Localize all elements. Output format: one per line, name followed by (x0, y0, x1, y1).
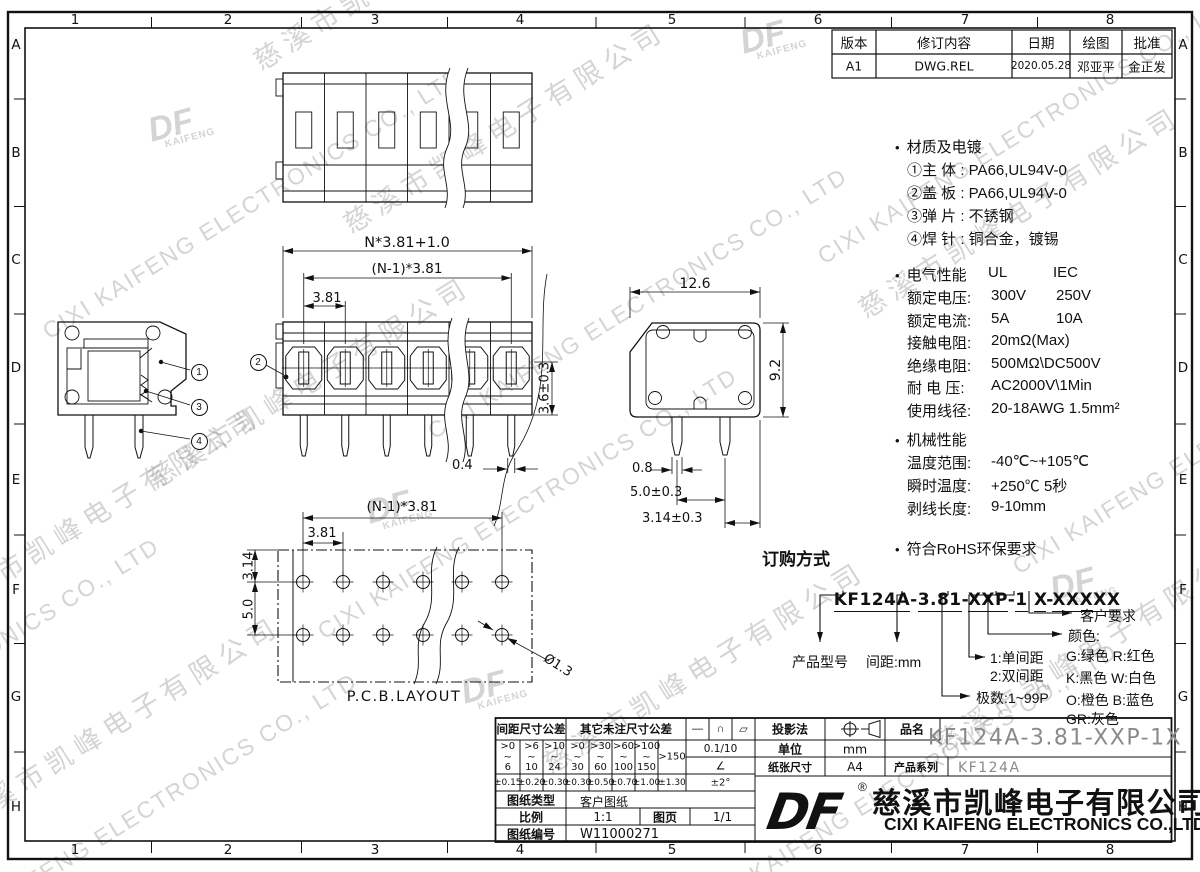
grid-row-label: G (1178, 689, 1188, 705)
spec-mechanical-row: 瞬时温度:+250℃ 5秒 (907, 475, 1067, 496)
grid-row-label: D (11, 360, 21, 376)
tb-range: >0~6 (500, 742, 515, 774)
revision-drawn-by: 邓亚平 (1077, 57, 1115, 76)
grid-row-label: E (12, 472, 21, 488)
grid-row-label: B (11, 145, 20, 161)
angle-icon: ∠ (716, 759, 726, 772)
grid-col-label: 4 (516, 12, 525, 28)
tb-pitch-tol-header: 间距尺寸公差 (497, 721, 566, 737)
spec-material-item: ②盖 板 : PA66,UL94V-0 (907, 182, 1067, 203)
grid-row-label: A (1178, 37, 1187, 53)
ordering-color-option: O:橙色 B:蓝色 (1066, 690, 1154, 710)
tb-part-label: 品名 (900, 721, 924, 738)
revision-header-drawn: 绘图 (1083, 32, 1110, 52)
grid-col-label: 1 (71, 842, 80, 858)
ordering-title: 订购方式 (762, 545, 830, 570)
grid-row-label: C (1178, 252, 1187, 268)
ordering-double-pitch-label: 2:双间距 (990, 666, 1044, 686)
ordering-color-option: G:绿色 R:红色 (1066, 646, 1155, 666)
dim-pcb-row-offset: 3.14 (243, 552, 256, 581)
tb-paper-value: A4 (847, 760, 863, 774)
tb-unit-value: mm (843, 741, 867, 756)
straightness-icon: — (692, 723, 703, 735)
tb-sheet-label: 图页 (653, 808, 677, 825)
pcb-layout-label: P.C.B.LAYOUT (347, 690, 462, 705)
top-view (276, 68, 532, 208)
grid-row-label: A (11, 37, 20, 53)
dim-overall-width: N*3.81+1.0 (364, 236, 450, 251)
tb-series-label: 产品系列 (894, 759, 938, 775)
tb-scale-value: 1:1 (593, 810, 612, 824)
tb-part-value: KF124A-3.81-XXP-1X (928, 726, 1182, 751)
tb-range: >100~150 (633, 742, 660, 774)
dim-pcb-row-spacing: 5.0 (243, 599, 256, 620)
spec-mechanical-title: •机械性能 (895, 429, 967, 450)
grid-col-label: 7 (961, 12, 970, 28)
callout-2-cover: 2 (250, 354, 267, 371)
dim-side-width: 12.6 (679, 277, 710, 291)
grid-col-label: 5 (668, 12, 677, 28)
callout-3-spring: 3 (191, 399, 208, 416)
dim-pitch: 3.81 (313, 292, 342, 305)
grid-col-label: 5 (668, 842, 677, 858)
registered-mark-icon: ® (858, 780, 867, 794)
tb-range: >60~100 (613, 742, 634, 774)
ordering-single-pitch-label: 1:单间距 (990, 648, 1044, 668)
grid-row-label: E (1179, 472, 1188, 488)
ordering-model-label: 产品型号 (792, 652, 848, 672)
tb-sheet-value: 1/1 (713, 810, 732, 824)
section-view (58, 322, 190, 458)
spec-electrical-title: •电气性能 (895, 264, 967, 285)
spec-material-item: ③弹 片 : 不锈钢 (907, 205, 1014, 226)
tb-type-value: 客户图纸 (580, 793, 628, 810)
tb-number-label: 图纸编号 (507, 825, 555, 842)
dim-span: (N-1)*3.81 (372, 263, 443, 277)
tb-range-last: >150 (658, 752, 685, 763)
spec-electrical-row: 绝缘电阻:500MΩ\DC500V (907, 355, 1101, 376)
dim-side-pin-spacing: 5.0±0.3 (630, 486, 682, 499)
spec-electrical-row: 使用线径:20-18AWG 1.5mm² (907, 400, 1120, 421)
revision-header-content: 修订内容 (917, 32, 971, 52)
grid-col-label: 6 (814, 842, 823, 858)
grid-col-label: 3 (371, 12, 380, 28)
tb-unit-label: 单位 (778, 740, 802, 757)
spec-material-item: ①主 体 : PA66,UL94V-0 (907, 159, 1067, 180)
ordering-color-option: K:黑色 W:白色 (1066, 668, 1156, 688)
grid-row-label: G (11, 689, 21, 705)
callout-4-pin: 4 (191, 433, 208, 450)
grid-col-label: 1 (71, 12, 80, 28)
spec-mechanical-row: 温度范围:-40℃~+105℃ (907, 452, 1089, 473)
grid-col-label: 2 (224, 842, 233, 858)
grid-col-label: 2 (224, 12, 233, 28)
side-view (630, 323, 760, 455)
revision-version: A1 (846, 59, 863, 74)
spec-mechanical-row: 剥线长度:9-10mm (907, 498, 1046, 519)
dim-pcb-pitch: 3.81 (308, 527, 337, 540)
tb-other-tol-header: 其它未注尺寸公差 (580, 721, 672, 737)
tb-angle-tol: ±2° (711, 777, 731, 788)
tb-range: >0~30 (570, 742, 585, 774)
tb-scale-label: 比例 (519, 808, 543, 825)
ordering-code: KF124A-3.81-XXP-1 X-XXXXX (808, 570, 1120, 630)
dim-side-height: 9.2 (769, 359, 783, 381)
tb-number-value: W11000271 (580, 827, 659, 842)
front-view (264, 274, 547, 526)
grid-row-label: B (1178, 145, 1187, 161)
ordering-customer-label: 客户要求 (1080, 606, 1136, 626)
revision-header-version: 版本 (841, 32, 868, 52)
grid-col-label: 3 (371, 842, 380, 858)
spec-electrical-cols: ULIEC (988, 264, 1078, 281)
tb-series-value: KF124A (958, 760, 1021, 776)
dim-pin-width: 0.4 (452, 459, 473, 472)
parallelism-icon: ▱ (739, 723, 747, 736)
revision-header-date: 日期 (1028, 32, 1055, 52)
spec-electrical-row: 耐 电 压:AC2000V\1Min (907, 377, 1092, 398)
tb-paper-label: 纸张尺寸 (768, 759, 812, 775)
grid-col-label: 6 (814, 12, 823, 28)
revision-header-approved: 批准 (1134, 32, 1161, 52)
grid-col-label: 8 (1106, 12, 1115, 28)
company-name-en: CIXI KAIFENG ELECTRONICS CO.,LTD (884, 814, 1200, 835)
ordering-poles-label: 极数:1~99P (976, 688, 1049, 708)
ordering-color-title: 颜色: (1068, 626, 1100, 646)
revision-date: 2020.05.28 (1011, 60, 1071, 72)
spec-rohs: •符合RoHS环保要求 (895, 538, 1037, 559)
revision-content: DWG.REL (914, 59, 973, 74)
spec-material-item: ④焊 针 : 铜合金，镀锡 (907, 228, 1059, 249)
dim-height: 3.6±0.3 (539, 362, 552, 414)
spec-electrical-row: 额定电压:300V250V (907, 287, 1091, 308)
callout-1-housing: 1 (191, 364, 208, 381)
spec-electrical-row: 额定电流:5A10A (907, 310, 1083, 331)
projection-symbol (841, 721, 880, 738)
dim-side-edge: 3.14±0.3 (642, 512, 703, 525)
grid-row-label: D (1178, 360, 1188, 376)
grid-row-label: C (11, 252, 20, 268)
spec-electrical-row: 接触电阻:20mΩ(Max) (907, 332, 1070, 353)
grid-col-label: 8 (1106, 842, 1115, 858)
flatness-icon: ∩ (717, 723, 725, 735)
grid-col-label: 4 (516, 842, 525, 858)
revision-approved-by: 金正发 (1128, 57, 1166, 76)
tb-range: >6~10 (524, 742, 539, 774)
grid-row-label: F (12, 582, 20, 598)
tb-range: >30~60 (590, 742, 611, 774)
tb-projection-label: 投影法 (772, 721, 808, 738)
tb-flatness-value: 0.1/10 (704, 743, 738, 755)
grid-row-label: H (11, 799, 21, 815)
pcb-layout-view (247, 512, 549, 684)
tb-type-label: 图纸类型 (507, 791, 555, 808)
spec-material-title: •材质及电镀 (895, 136, 982, 157)
tb-tol: ±1.30 (658, 778, 686, 788)
ordering-pitch-label: 间距:mm (866, 652, 921, 672)
engineering-drawing-page: 慈溪市凯峰电子有限公司 慈溪市凯峰电子有限公司 CIXI KAIFENG ELE… (0, 0, 1200, 872)
revision-table-lines (832, 30, 1172, 78)
dim-pcb-span: (N-1)*3.81 (367, 501, 438, 515)
dim-side-pin-width: 0.8 (632, 462, 653, 475)
tb-range: >10~24 (544, 742, 565, 774)
grid-col-label: 7 (961, 842, 970, 858)
tb-tol: ±1.00 (633, 778, 661, 788)
company-logo: DF (763, 783, 845, 841)
grid-row-label: F (1179, 582, 1187, 598)
